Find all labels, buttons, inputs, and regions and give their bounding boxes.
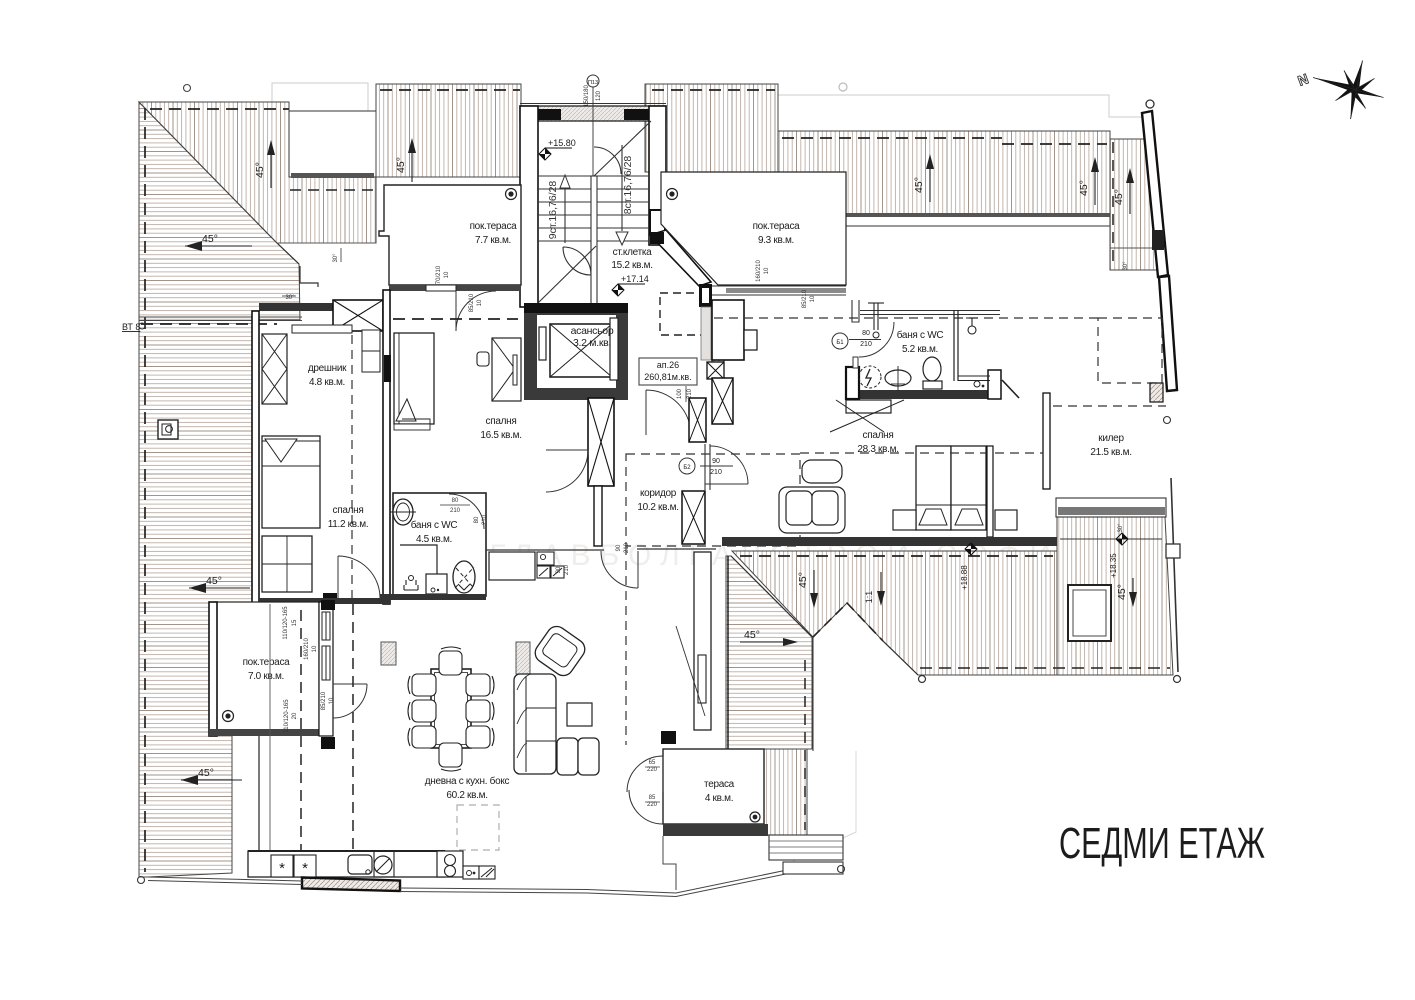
svg-text:пок.тераса: пок.тераса <box>470 221 518 232</box>
svg-text:45°: 45° <box>206 575 222 587</box>
svg-text:пок.тераса: пок.тераса <box>243 657 291 668</box>
svg-text:10.2 кв.м.: 10.2 кв.м. <box>637 502 678 513</box>
svg-text:+15.80: +15.80 <box>548 138 576 148</box>
svg-text:45°: 45° <box>1078 180 1090 196</box>
svg-text:210: 210 <box>482 514 488 525</box>
svg-text:10: 10 <box>477 299 483 306</box>
svg-text:ап.26: ап.26 <box>657 360 679 370</box>
svg-text:15.2 кв.м.: 15.2 кв.м. <box>611 260 652 271</box>
svg-text:100: 100 <box>677 388 683 399</box>
svg-text:45°: 45° <box>797 572 809 588</box>
svg-text:спалня: спалня <box>863 430 894 441</box>
svg-text:4.8 кв.м.: 4.8 кв.м. <box>309 377 345 388</box>
svg-text:10: 10 <box>810 295 816 302</box>
svg-text:7.7 кв.м.: 7.7 кв.м. <box>475 235 511 246</box>
svg-text:21.5 кв.м.: 21.5 кв.м. <box>1090 447 1131 458</box>
svg-text:120: 120 <box>596 90 602 101</box>
svg-text:11.2 кв.м.: 11.2 кв.м. <box>328 519 369 530</box>
svg-text:1:1: 1:1 <box>864 591 874 604</box>
svg-text:ВТ 8: ВТ 8 <box>122 322 140 332</box>
svg-text:4.5 кв.м.: 4.5 кв.м. <box>416 534 452 545</box>
svg-text:4 кв.м.: 4 кв.м. <box>705 793 733 804</box>
svg-text:дрешник: дрешник <box>308 363 347 374</box>
svg-text:160/210: 160/210 <box>756 260 762 282</box>
svg-text:асансьор: асансьор <box>571 325 614 337</box>
svg-text:45°: 45° <box>198 767 214 779</box>
svg-text:80: 80 <box>474 516 480 523</box>
svg-text:45°: 45° <box>913 177 925 193</box>
svg-text:45°: 45° <box>202 233 218 245</box>
svg-text:3.2 м.кв.: 3.2 м.кв. <box>573 337 611 349</box>
svg-text:85/210: 85/210 <box>469 293 475 312</box>
svg-text:9.3 кв.м.: 9.3 кв.м. <box>758 235 794 246</box>
svg-text:45°: 45° <box>395 157 407 173</box>
svg-text:спалня: спалня <box>333 505 364 516</box>
svg-text:110/120-165: 110/120-165 <box>284 699 290 733</box>
svg-text:коридор: коридор <box>640 488 677 499</box>
svg-text:45°: 45° <box>744 629 760 641</box>
svg-text:210: 210 <box>450 508 461 514</box>
svg-text:220: 220 <box>647 767 658 773</box>
svg-text:ст.клетка: ст.клетка <box>613 247 653 258</box>
svg-text:пок.тераса: пок.тераса <box>753 221 801 232</box>
svg-text:30°: 30° <box>333 253 339 263</box>
svg-text:+17.14: +17.14 <box>621 274 649 284</box>
svg-text:60.2 кв.м.: 60.2 кв.м. <box>446 790 487 801</box>
svg-text:90: 90 <box>712 458 720 465</box>
svg-text:Б1: Б1 <box>836 340 844 346</box>
svg-text:85/210: 85/210 <box>802 289 808 308</box>
svg-text:15: 15 <box>292 619 298 626</box>
svg-text:спалня: спалня <box>486 416 517 427</box>
svg-text:7.0 кв.м.: 7.0 кв.м. <box>248 671 284 682</box>
svg-text:30°: 30° <box>1118 523 1124 533</box>
svg-text:210: 210 <box>564 564 570 575</box>
svg-text:160/210: 160/210 <box>304 638 310 660</box>
svg-text:45°: 45° <box>1113 189 1125 205</box>
svg-text:85/210: 85/210 <box>321 691 327 710</box>
svg-text:210: 210 <box>860 341 872 348</box>
svg-text:260,81м.кв.: 260,81м.кв. <box>644 372 691 382</box>
svg-text:8ст.16,76/28: 8ст.16,76/28 <box>622 156 634 215</box>
svg-text:16.5 кв.м.: 16.5 кв.м. <box>480 430 521 441</box>
svg-text:210: 210 <box>710 469 722 476</box>
svg-text:10: 10 <box>312 645 318 652</box>
svg-text:90: 90 <box>556 566 562 573</box>
svg-text:Б2: Б2 <box>683 465 691 471</box>
svg-text:10: 10 <box>444 271 450 278</box>
svg-text:килер: килер <box>1098 433 1124 444</box>
svg-text:70/210: 70/210 <box>436 265 442 284</box>
svg-text:90: 90 <box>616 544 622 551</box>
svg-text:30°: 30° <box>1123 261 1129 271</box>
svg-text:150/180: 150/180 <box>584 85 590 107</box>
svg-text:110/120-165: 110/120-165 <box>283 606 289 640</box>
svg-text:9ст.16,76/28: 9ст.16,76/28 <box>547 181 559 240</box>
svg-text:220: 220 <box>647 802 658 808</box>
svg-text:80: 80 <box>862 330 870 337</box>
svg-text:10: 10 <box>764 267 770 274</box>
svg-text:П13: П13 <box>588 80 598 86</box>
svg-text:210: 210 <box>624 542 630 553</box>
svg-text:+18.88: +18.88 <box>960 565 969 590</box>
svg-text:СЕДМИ ЕТАЖ: СЕДМИ ЕТАЖ <box>1059 819 1265 868</box>
svg-text:+18.35: +18.35 <box>1109 553 1118 578</box>
svg-text:45°: 45° <box>254 162 266 178</box>
svg-text:баня с WC: баня с WC <box>411 519 458 531</box>
svg-text:*: * <box>279 860 285 877</box>
svg-text:*: * <box>302 860 308 877</box>
svg-text:65: 65 <box>649 760 656 766</box>
svg-text:80: 80 <box>452 498 459 504</box>
svg-text:45°: 45° <box>1116 584 1128 600</box>
svg-text:20: 20 <box>292 712 298 719</box>
svg-text:10: 10 <box>329 697 335 704</box>
svg-text:дневна с кухн. бокс: дневна с кухн. бокс <box>425 775 510 787</box>
svg-text:тераса: тераса <box>704 779 735 790</box>
svg-text:5.2 кв.м.: 5.2 кв.м. <box>902 344 938 355</box>
svg-text:баня с WC: баня с WC <box>897 329 944 341</box>
svg-text:85: 85 <box>649 795 656 801</box>
